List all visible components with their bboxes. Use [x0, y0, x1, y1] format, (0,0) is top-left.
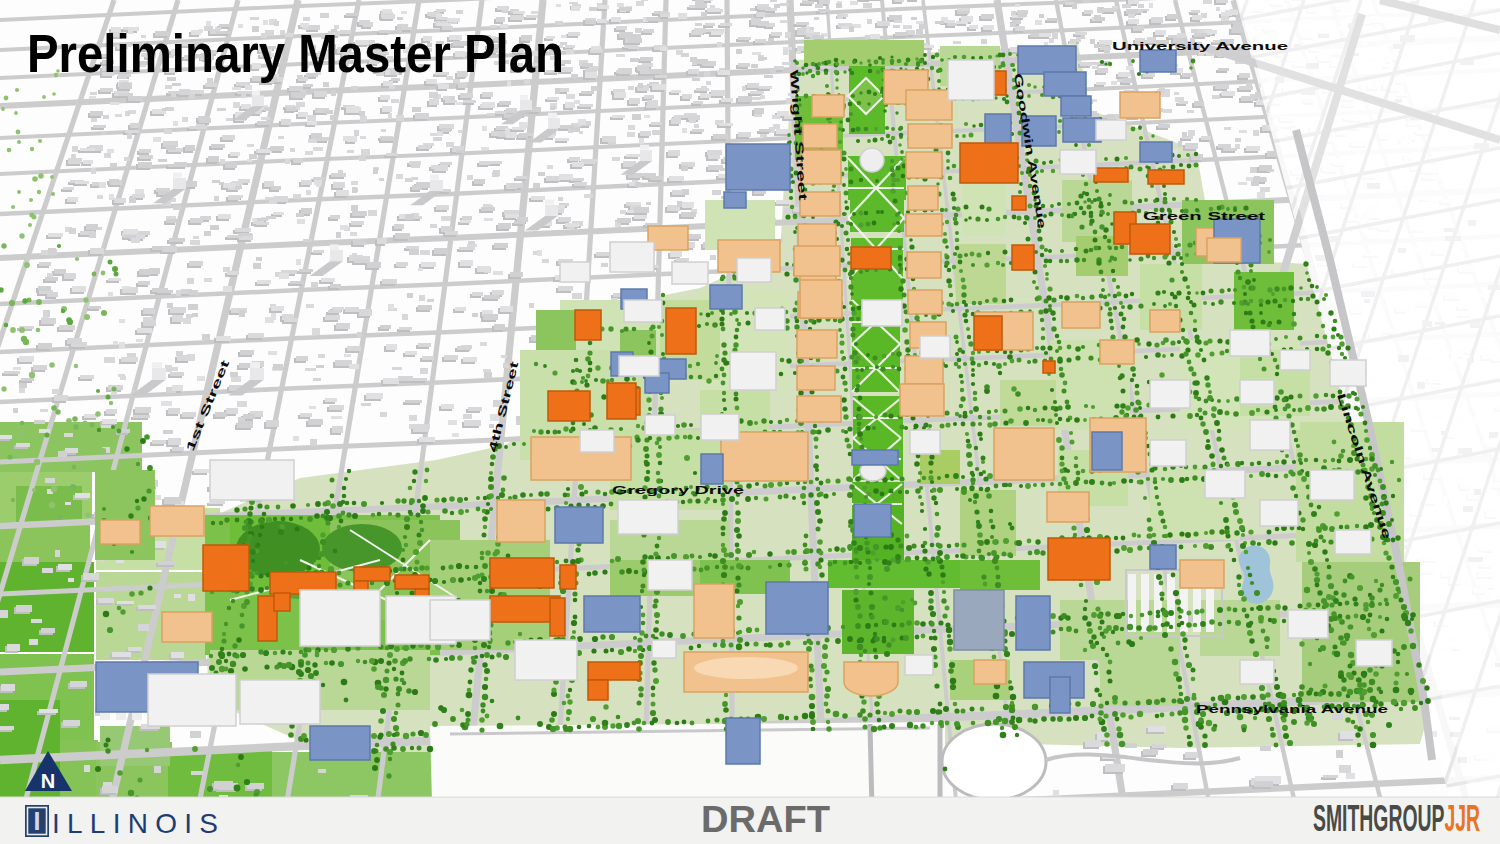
- svg-text:DRAFT: DRAFT: [701, 799, 830, 840]
- svg-text:Preliminary Master Plan: Preliminary Master Plan: [27, 23, 564, 83]
- svg-text:I: I: [34, 807, 41, 835]
- svg-text:University Avenue: University Avenue: [1112, 40, 1288, 52]
- svg-text:Gregory Drive: Gregory Drive: [612, 484, 744, 496]
- svg-text:Green Street: Green Street: [1143, 210, 1265, 222]
- svg-text:N: N: [41, 770, 55, 792]
- svg-text:SMITHGROUPJJR: SMITHGROUPJJR: [1313, 798, 1480, 839]
- svg-text:Pennsylvania Avenue: Pennsylvania Avenue: [1196, 703, 1388, 715]
